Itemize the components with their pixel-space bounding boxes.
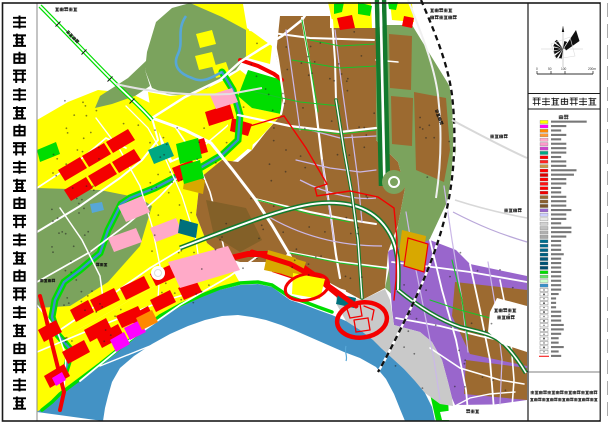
svg-text:50: 50 [548,67,552,71]
svg-text:100: 100 [561,67,567,71]
svg-text:0: 0 [536,67,538,71]
svg-text:200m: 200m [588,67,596,71]
